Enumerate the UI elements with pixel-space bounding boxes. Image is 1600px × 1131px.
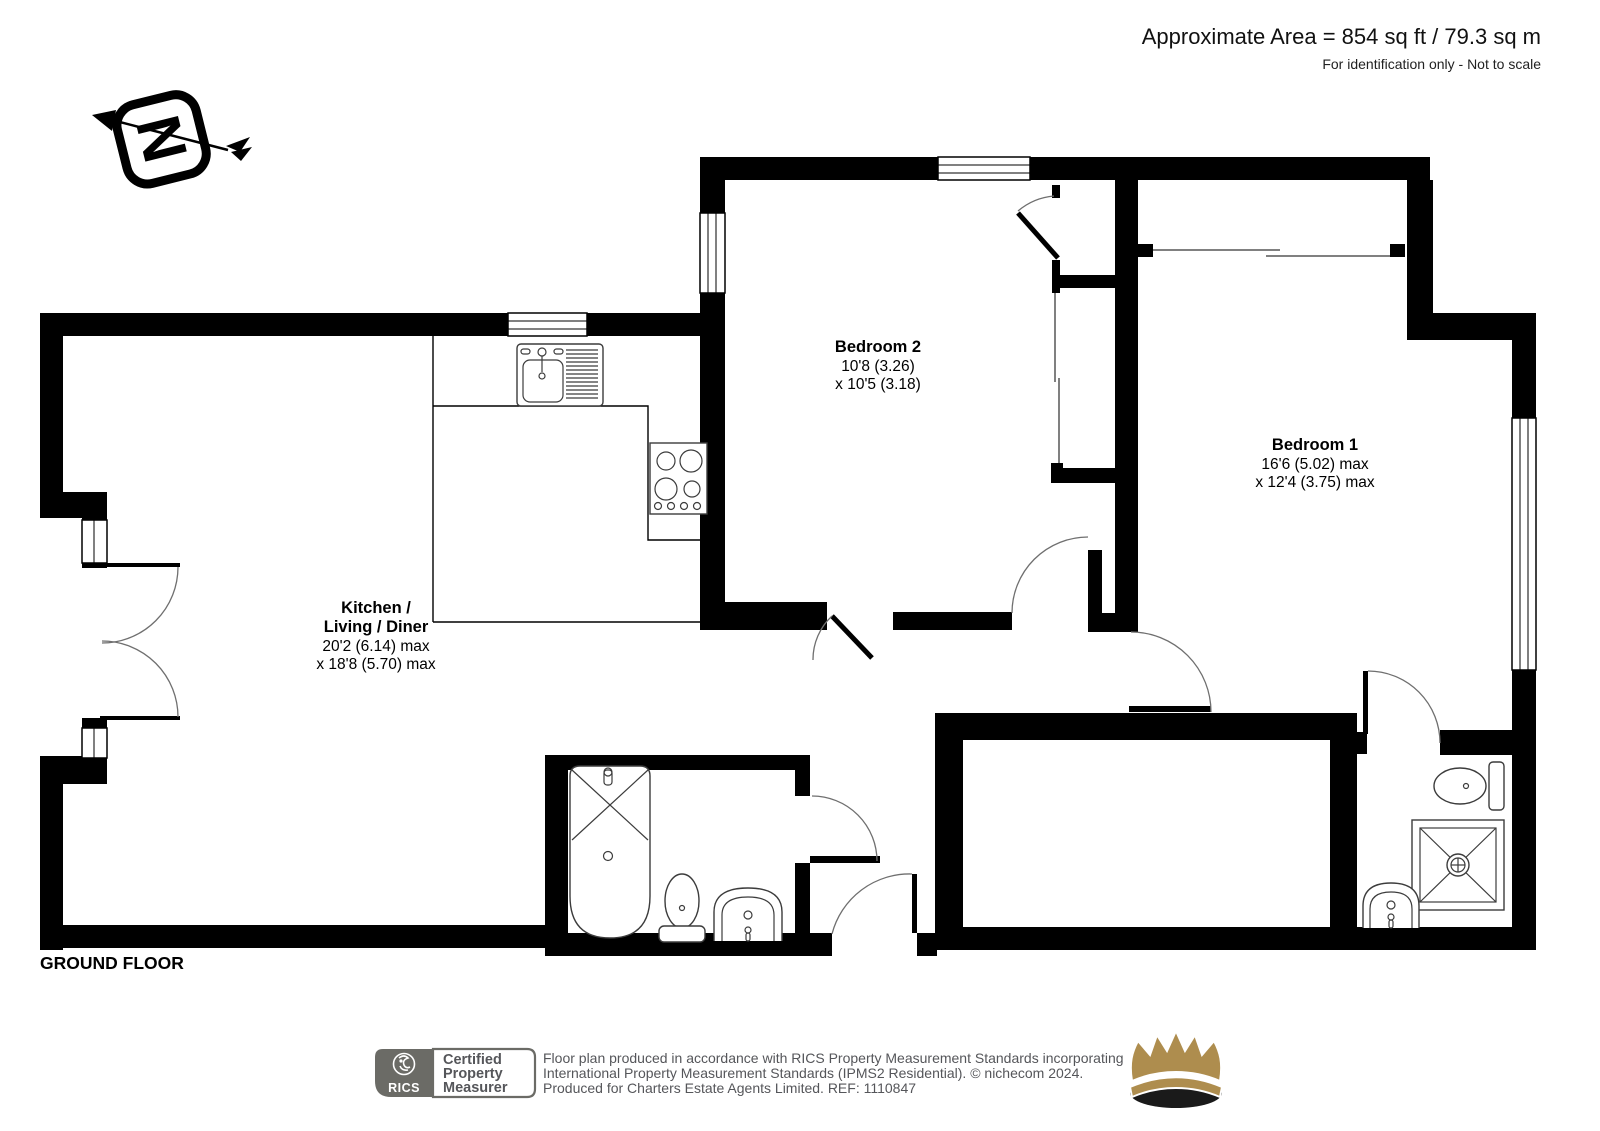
rics-wordmark: RICS	[388, 1081, 420, 1095]
footer-line3: Produced for Charters Estate Agents Limi…	[543, 1080, 916, 1096]
patio-double-door	[100, 563, 180, 720]
bedroom2-wardrobe	[1055, 293, 1059, 465]
ensuite-door	[1363, 671, 1440, 743]
floor-title: GROUND FLOOR	[40, 953, 184, 973]
bedroom1-dims-line1: 16'6 (5.02) max	[1261, 456, 1368, 473]
front-door	[832, 874, 917, 934]
bedroom2-corridor-door	[1012, 537, 1088, 613]
ensuite-basin	[1363, 883, 1419, 928]
shower	[1412, 820, 1504, 910]
kitchen-name-line1: Kitchen /	[341, 599, 411, 617]
bedroom2-door	[1018, 196, 1058, 258]
walls	[40, 157, 1536, 956]
kitchen-fittings	[433, 336, 707, 622]
living-left-window-lower	[82, 728, 107, 758]
kitchen-dims-line2: x 18'8 (5.70) max	[316, 656, 436, 673]
bedroom1-wardrobe	[1153, 250, 1390, 256]
bedroom2-dims-line2: x 10'5 (3.18)	[835, 376, 921, 393]
toilet	[659, 874, 705, 942]
bedroom1-right-window	[1512, 418, 1536, 670]
crown-logo-icon	[1130, 1031, 1222, 1108]
doors	[100, 196, 1440, 934]
basin	[714, 888, 782, 941]
bathroom-fixtures	[570, 766, 782, 942]
kitchen-dims-line1: 20'2 (6.14) max	[322, 638, 429, 655]
bedroom2-name: Bedroom 2	[835, 338, 921, 356]
not-to-scale-note: For identification only - Not to scale	[1322, 56, 1541, 72]
footer-line2: International Property Measurement Stand…	[543, 1065, 1083, 1081]
kitchen-label: Kitchen / Living / Diner 20'2 (6.14) max…	[316, 599, 436, 673]
floor-plan: Approximate Area = 854 sq ft / 79.3 sq m…	[0, 0, 1600, 1131]
ensuite-toilet	[1434, 762, 1504, 810]
approximate-area-label: Approximate Area = 854 sq ft / 79.3 sq m	[1142, 24, 1541, 49]
hob	[650, 443, 707, 514]
bathroom-door	[810, 796, 880, 863]
bedroom1-dims-line2: x 12'4 (3.75) max	[1255, 474, 1375, 491]
footer-line1: Floor plan produced in accordance with R…	[543, 1050, 1124, 1066]
kitchen-sink	[517, 344, 603, 406]
footer-disclaimer: Floor plan produced in accordance with R…	[543, 1050, 1124, 1096]
bedroom2-side-window	[700, 213, 725, 293]
room-labels: Kitchen / Living / Diner 20'2 (6.14) max…	[316, 338, 1375, 673]
bedroom1-label: Bedroom 1 16'6 (5.02) max x 12'4 (3.75) …	[1255, 436, 1375, 491]
bedroom2-label: Bedroom 2 10'8 (3.26) x 10'5 (3.18)	[835, 338, 921, 393]
rics-logo: RICS Certified Property Measurer	[375, 1049, 535, 1097]
certified-line3: Measurer	[443, 1080, 508, 1096]
kitchen-top-window	[508, 313, 587, 336]
bedroom1-door	[1129, 632, 1211, 712]
bedroom2-dims-line1: 10'8 (3.26)	[841, 358, 915, 375]
bedroom2-top-window	[938, 157, 1030, 180]
floorplan-page: Approximate Area = 854 sq ft / 79.3 sq m…	[0, 0, 1600, 1131]
kitchen-name-line2: Living / Diner	[324, 618, 429, 636]
bedroom1-name: Bedroom 1	[1272, 436, 1358, 454]
ensuite-fixtures	[1363, 762, 1504, 928]
bath-tub	[570, 766, 650, 938]
living-left-window-upper	[82, 520, 107, 563]
north-arrow-icon: N	[92, 90, 252, 188]
